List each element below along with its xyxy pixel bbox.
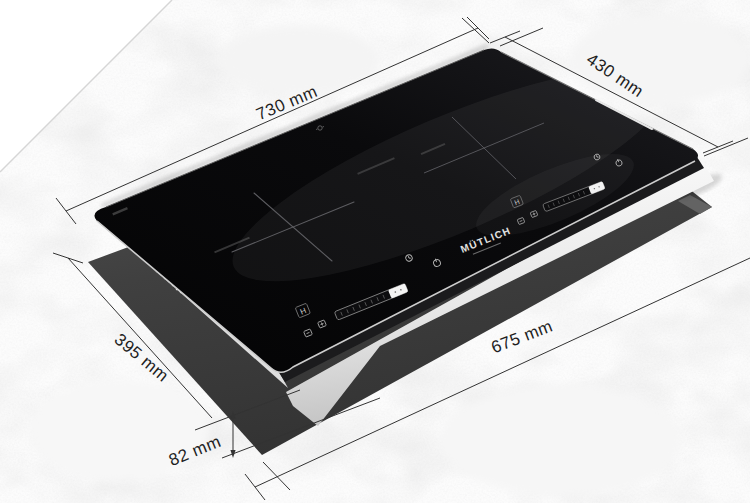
product-dimension-diagram: MÜTLICH H [0,0,750,503]
marble-highlight [440,385,680,495]
diagram-canvas: MÜTLICH H [0,0,750,503]
marble-highlight [220,25,380,95]
